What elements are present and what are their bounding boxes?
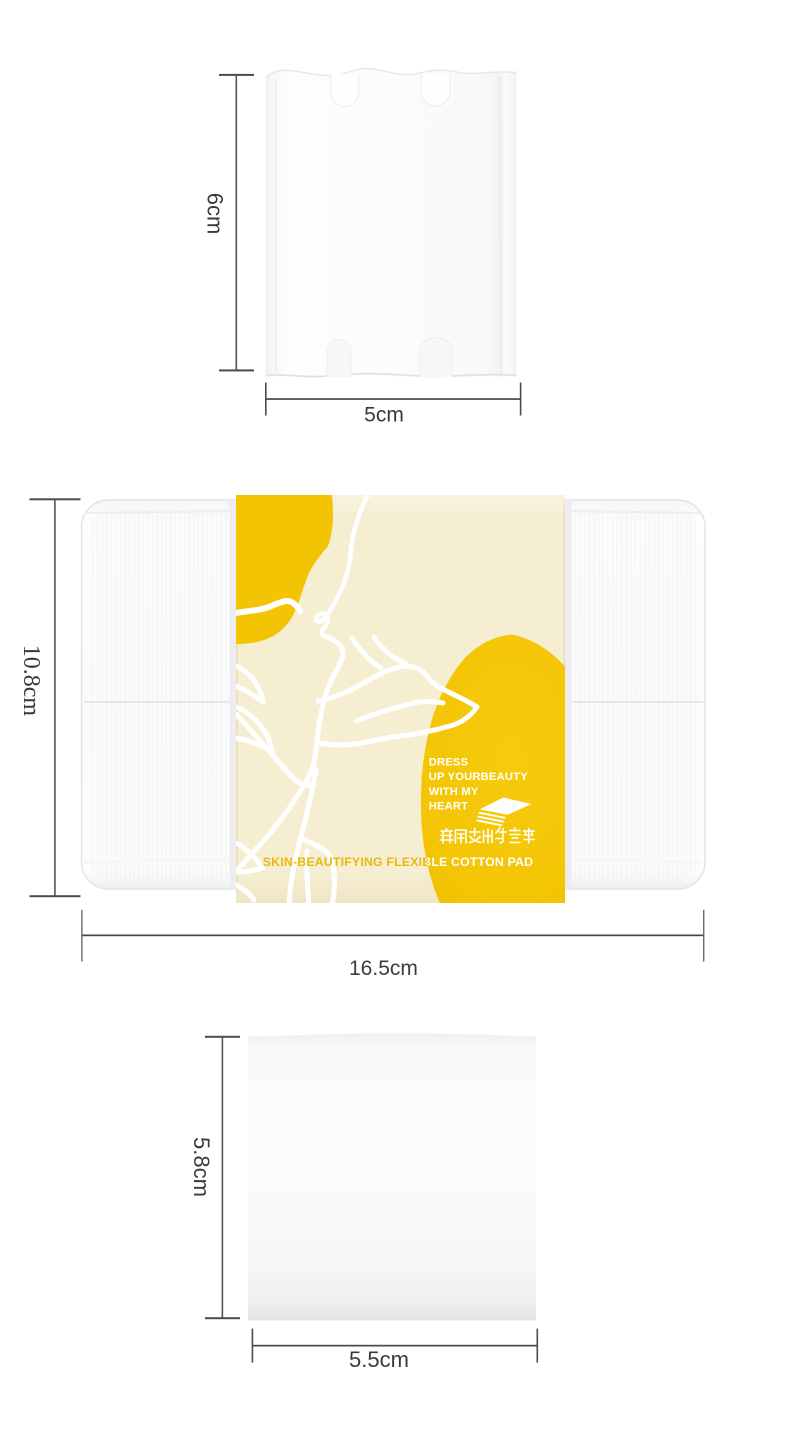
svg-text:16.5cm: 16.5cm bbox=[349, 957, 418, 980]
svg-text:5.8cm: 5.8cm bbox=[189, 1137, 214, 1197]
svg-text:6cm: 6cm bbox=[203, 193, 228, 235]
svg-text:5cm: 5cm bbox=[364, 404, 404, 427]
svg-text:10.8cm: 10.8cm bbox=[18, 645, 44, 717]
svg-text:UP YOURBEAUTY: UP YOURBEAUTY bbox=[429, 771, 529, 783]
svg-text:5.5cm: 5.5cm bbox=[349, 1347, 409, 1372]
svg-text:DRESS: DRESS bbox=[429, 757, 469, 769]
svg-text:HEART: HEART bbox=[429, 801, 469, 813]
svg-text:WITH MY: WITH MY bbox=[429, 786, 479, 798]
